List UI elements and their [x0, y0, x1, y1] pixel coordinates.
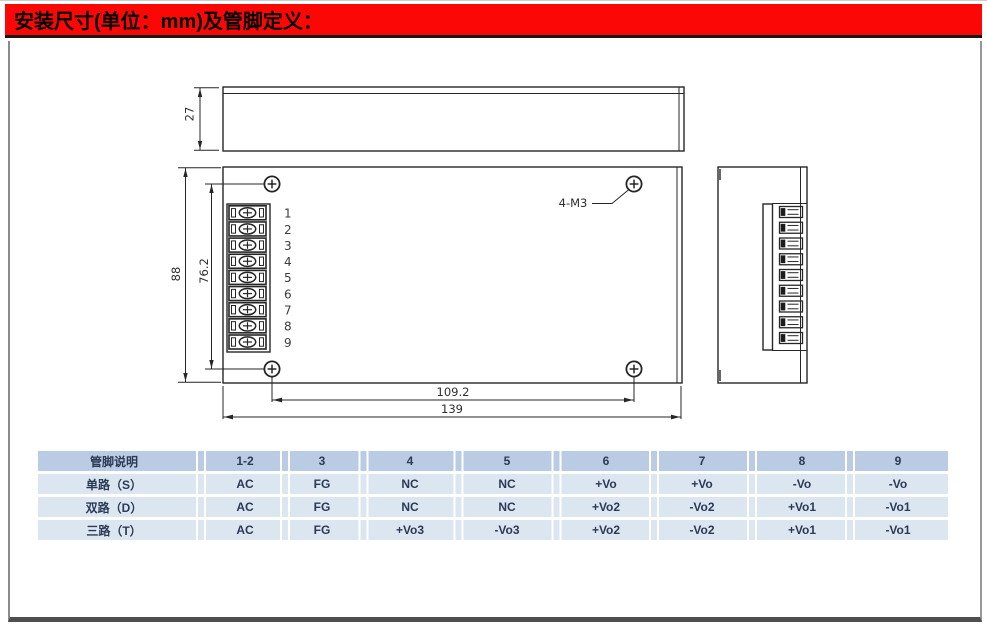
column-gap [190, 520, 212, 540]
pin-table-header-cell: 1-2 [212, 451, 278, 471]
pin-table-cell: +Vo [667, 474, 737, 494]
pin-table-cell: -Vo3 [472, 520, 542, 540]
pin-table-cell: +Vo3 [375, 520, 445, 540]
column-gap [445, 451, 472, 471]
pin-table-cell: FG [292, 497, 352, 517]
pin-table-header-cell: 5 [472, 451, 542, 471]
pin-table-cell: -Vo [863, 474, 933, 494]
pin-table-header-cell: 8 [767, 451, 837, 471]
pin-table-cell: +Vo2 [571, 497, 641, 517]
pin-table-header-row: 管脚说明1-23456789 [38, 451, 948, 471]
page-top-border [0, 0, 987, 1]
column-gap [352, 520, 375, 540]
pin-table-cell: +Vo2 [571, 520, 641, 540]
column-gap [737, 451, 767, 471]
column-gap [445, 497, 472, 517]
pin-table-header-cell: 管脚说明 [38, 451, 190, 471]
pin-table-cell: NC [472, 497, 542, 517]
column-gap [278, 497, 292, 517]
pin-table-header-cell: 6 [571, 451, 641, 471]
pin-table-cell: AC [212, 520, 278, 540]
pin-table-cell: +Vo1 [767, 497, 837, 517]
pin-table-cell: -Vo [767, 474, 837, 494]
column-gap [641, 497, 667, 517]
column-gap [837, 451, 863, 471]
column-gap [352, 451, 375, 471]
column-gap [278, 474, 292, 494]
column-gap [837, 497, 863, 517]
pin-table-cell: NC [375, 497, 445, 517]
pin-table-row: 三路（T）ACFG+Vo3-Vo3+Vo2-Vo2+Vo1-Vo1 [38, 520, 948, 540]
pin-table-header-cell: 7 [667, 451, 737, 471]
column-gap [445, 520, 472, 540]
column-gap [445, 474, 472, 494]
column-gap [352, 474, 375, 494]
column-gap [190, 497, 212, 517]
column-gap [641, 451, 667, 471]
column-gap [837, 474, 863, 494]
pin-table: 管脚说明1-23456789单路（S）ACFGNCNC+Vo+Vo-Vo-Vo双… [38, 451, 948, 543]
column-gap [542, 474, 571, 494]
column-gap [933, 474, 948, 494]
pin-table-row: 双路（D）ACFGNCNC+Vo2-Vo2+Vo1-Vo1 [38, 497, 948, 517]
pin-table-cell: FG [292, 520, 352, 540]
column-gap [737, 474, 767, 494]
datasheet-page: 安装尺寸(单位：mm)及管脚定义： [0, 0, 987, 633]
pin-table-row-label: 双路（D） [38, 497, 190, 517]
column-gap [190, 474, 212, 494]
pin-table-cell: -Vo1 [863, 520, 933, 540]
pin-table-header-cell: 4 [375, 451, 445, 471]
column-gap [278, 451, 292, 471]
column-gap [837, 520, 863, 540]
pin-table-cell: FG [292, 474, 352, 494]
column-gap [542, 497, 571, 517]
column-gap [190, 451, 212, 471]
column-gap [641, 520, 667, 540]
pin-table-cell: +Vo [571, 474, 641, 494]
pin-table-cell: -Vo1 [863, 497, 933, 517]
column-gap [542, 451, 571, 471]
pin-table-header-cell: 3 [292, 451, 352, 471]
column-gap [933, 451, 948, 471]
pin-table-cell: -Vo2 [667, 520, 737, 540]
pin-table-cell: NC [375, 474, 445, 494]
section-title: 安装尺寸(单位：mm)及管脚定义： [14, 5, 323, 34]
section-title-bar: 安装尺寸(单位：mm)及管脚定义： [5, 4, 982, 38]
pin-table-cell: AC [212, 497, 278, 517]
pin-table-cell: NC [472, 474, 542, 494]
pin-table-cell: -Vo2 [667, 497, 737, 517]
column-gap [542, 520, 571, 540]
column-gap [641, 474, 667, 494]
column-gap [737, 497, 767, 517]
column-gap [737, 520, 767, 540]
pin-table-row-label: 三路（T） [38, 520, 190, 540]
column-gap [278, 520, 292, 540]
column-gap [933, 520, 948, 540]
pin-table-row: 单路（S）ACFGNCNC+Vo+Vo-Vo-Vo [38, 474, 948, 494]
pin-table-row-label: 单路（S） [38, 474, 190, 494]
column-gap [352, 497, 375, 517]
pin-table-cell: +Vo1 [767, 520, 837, 540]
pin-table-header-cell: 9 [863, 451, 933, 471]
column-gap [933, 497, 948, 517]
pin-table-cell: AC [212, 474, 278, 494]
